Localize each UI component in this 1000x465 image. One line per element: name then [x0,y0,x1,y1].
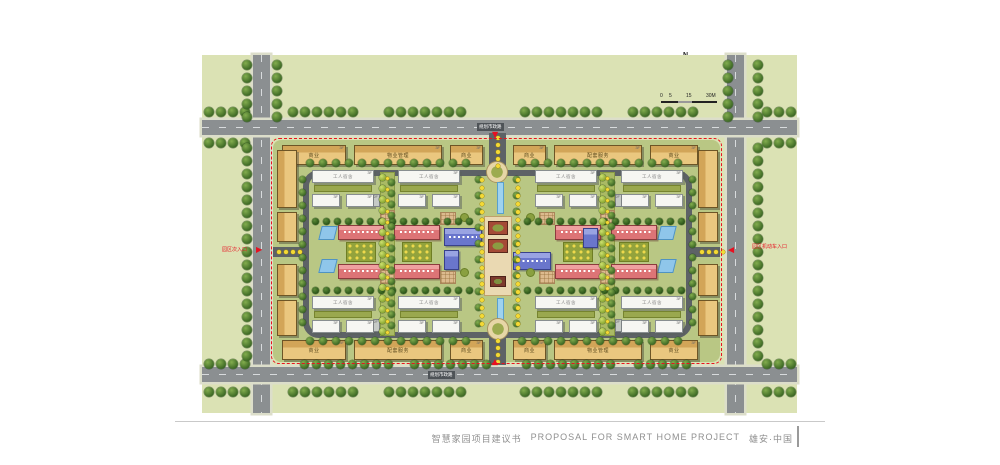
tree-icon [753,182,763,192]
tree-icon [444,107,454,117]
tree-icon [396,107,406,117]
tree-icon [753,351,763,361]
tree-icon [723,60,733,70]
tree-icon [762,138,772,148]
tree-icon [753,260,763,270]
tree-icon [628,107,638,117]
tree-icon [396,387,406,397]
tree-icon [723,86,733,96]
tree-icon [242,234,252,244]
tree-icon [753,299,763,309]
tree-icon [774,387,784,397]
entrance-arrow-south: ▶ [491,359,499,365]
tree-icon [753,312,763,322]
tree-icon [723,73,733,83]
tree-icon [753,286,763,296]
tree-icon [753,195,763,205]
tree-icon [228,138,238,148]
title-divider [797,426,799,447]
tree-icon [532,107,542,117]
tree-icon [786,359,796,369]
tree-icon [272,112,282,122]
tree-icon [312,387,322,397]
tree-icon [242,312,252,322]
tree-icon [272,99,282,109]
tree-icon [786,107,796,117]
tree-icon [640,387,650,397]
tree-icon [580,107,590,117]
tree-icon [242,221,252,231]
tree-icon [288,387,298,397]
tree-icon [336,107,346,117]
road-vertical-left [253,55,270,413]
site-boundary-redline [271,138,722,364]
tree-icon [242,195,252,205]
tree-icon [664,387,674,397]
tree-icon [242,351,252,361]
tree-icon [568,387,578,397]
tree-icon [753,60,763,70]
road-name-label: 规划市政路 [428,371,455,379]
tree-icon [456,107,466,117]
tree-icon [753,221,763,231]
tree-icon [676,387,686,397]
tree-icon [774,359,784,369]
tree-icon [753,86,763,96]
entrance-arrow-north: ▶ [491,132,499,138]
tree-icon [384,387,394,397]
tree-icon [723,99,733,109]
tree-icon [753,208,763,218]
entrance-label-east: 园区机动车入口 [752,243,787,250]
tree-icon [723,112,733,122]
tree-icon [242,325,252,335]
tree-icon [753,143,763,153]
tree-icon [242,182,252,192]
tree-icon [204,138,214,148]
scale-label: 5 [669,93,672,99]
tree-icon [753,156,763,166]
road-name-label: 规划市政路 [477,123,504,131]
tree-icon [408,107,418,117]
tree-icon [228,359,238,369]
tree-icon [242,86,252,96]
tree-icon [640,107,650,117]
tree-icon [786,138,796,148]
tree-icon [444,387,454,397]
tree-icon [652,107,662,117]
tree-icon [242,60,252,70]
tree-icon [456,387,466,397]
tree-icon [300,387,310,397]
tree-icon [753,99,763,109]
tree-icon [204,107,214,117]
entrance-arrow-west: ▶ [256,246,262,254]
tree-icon [544,387,554,397]
tree-icon [272,86,282,96]
tree-icon [242,208,252,218]
tree-icon [312,107,322,117]
sheet: N 智慧家园项目建议书 PROPOSAL FOR SMART HOME PROJ… [0,0,1000,465]
tree-icon [762,387,772,397]
tree-icon [204,387,214,397]
scale-label: 30M [706,93,716,99]
tree-icon [592,387,602,397]
tree-icon [762,107,772,117]
tree-icon [288,107,298,117]
tree-icon [786,387,796,397]
tree-icon [753,338,763,348]
tree-icon [753,169,763,179]
scale-bar-line [661,101,717,103]
tree-icon [568,107,578,117]
title-rule [175,421,825,422]
tree-icon [688,387,698,397]
tree-icon [242,156,252,166]
tree-icon [676,107,686,117]
tree-icon [420,107,430,117]
tree-icon [420,387,430,397]
tree-icon [242,73,252,83]
tree-icon [242,112,252,122]
tree-icon [544,107,554,117]
tree-icon [628,387,638,397]
tree-icon [532,387,542,397]
tree-icon [242,273,252,283]
tree-icon [242,338,252,348]
tree-icon [774,107,784,117]
road-horizontal-bottom [202,367,797,382]
tree-icon [242,299,252,309]
tree-icon [432,107,442,117]
tree-icon [324,387,334,397]
tree-icon [216,359,226,369]
tree-icon [242,99,252,109]
tree-icon [300,107,310,117]
tree-icon [774,138,784,148]
tree-icon [664,107,674,117]
tree-icon [324,107,334,117]
tree-icon [336,387,346,397]
tree-icon [204,359,214,369]
title-en: PROPOSAL FOR SMART HOME PROJECT [531,432,740,445]
tree-icon [216,387,226,397]
scale-label: 0 [660,93,663,99]
tree-icon [384,107,394,117]
tree-icon [242,260,252,270]
tree-icon [432,387,442,397]
tree-icon [753,112,763,122]
tree-icon [592,107,602,117]
tree-icon [688,107,698,117]
entrance-label-west: 园区次入口 [222,246,247,253]
tree-icon [652,387,662,397]
tree-icon [753,273,763,283]
tree-icon [556,387,566,397]
tree-icon [242,286,252,296]
tree-icon [753,325,763,335]
tree-icon [753,73,763,83]
tree-icon [228,107,238,117]
tree-icon [272,73,282,83]
tree-icon [228,387,238,397]
tree-icon [240,387,250,397]
title-loc: 雄安·中国 [749,432,793,445]
scale-label: 15 [686,93,692,99]
tree-icon [520,387,530,397]
entrance-arrow-east: ▶ [728,246,734,254]
tree-icon [556,107,566,117]
tree-icon [762,359,772,369]
tree-icon [580,387,590,397]
tree-icon [348,387,358,397]
tree-icon [242,143,252,153]
tree-icon [216,107,226,117]
title-cn: 智慧家园项目建议书 [432,432,522,445]
tree-icon [408,387,418,397]
tree-icon [272,60,282,70]
tree-icon [216,138,226,148]
title-block: 智慧家园项目建议书 PROPOSAL FOR SMART HOME PROJEC… [432,432,793,445]
tree-icon [520,107,530,117]
tree-icon [348,107,358,117]
tree-icon [242,169,252,179]
